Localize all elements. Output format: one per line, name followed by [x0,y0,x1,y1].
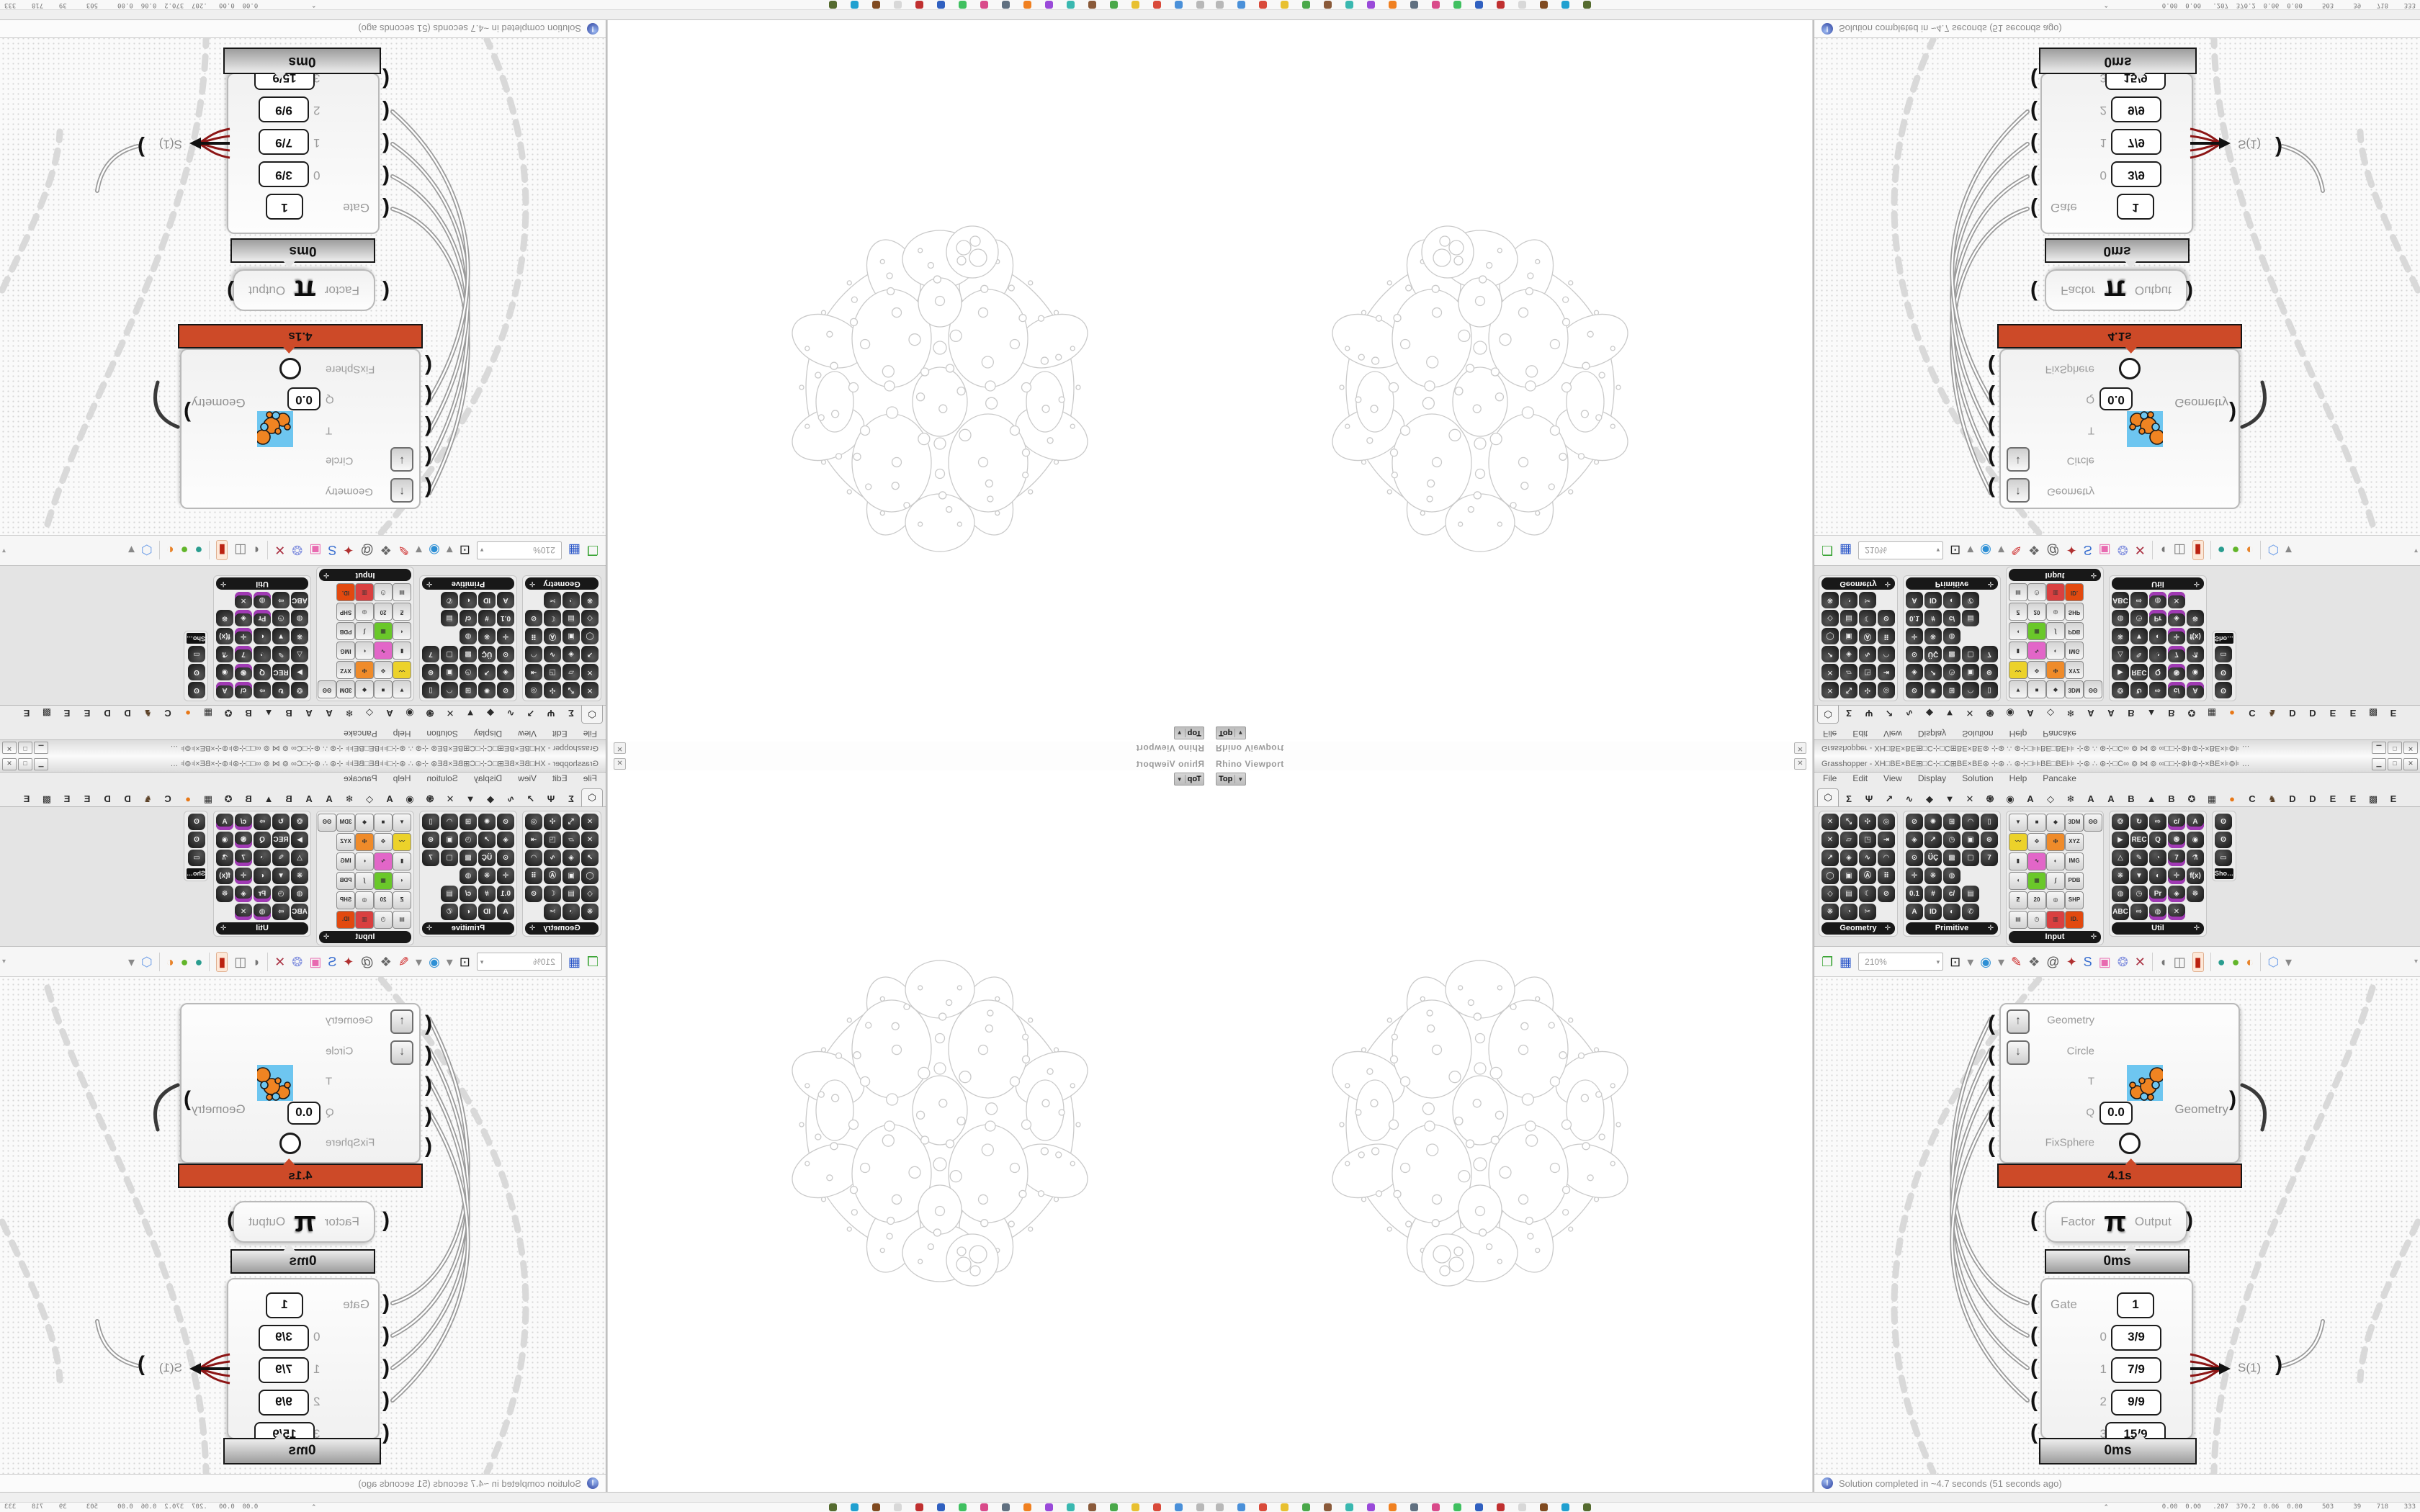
tab-plugin-a2[interactable]: A [2081,706,2101,721]
component-icon[interactable]: ֍ [2168,664,2185,680]
tab-mountain[interactable]: ▲ [259,706,279,721]
component-icon[interactable]: # [478,610,496,626]
component-icon[interactable]: Pr [2149,886,2166,902]
taskbar-app-icon[interactable] [1561,1,1569,9]
gate-input-grip[interactable]: ( [382,202,390,216]
component-icon[interactable]: ÜÇ [478,850,496,866]
component-icon[interactable]: ▦ [2027,872,2046,890]
component-icon[interactable]: ⊘ [525,886,542,902]
taskbar-app-icon[interactable] [851,1503,859,1511]
component-icon[interactable]: ID. [336,583,355,601]
taskbar[interactable]: ⌃ 0.00 0.00 .207 370.2 0.06 0.00 503 39 … [1210,0,2420,10]
component-icon[interactable]: ▯ [422,682,439,698]
taskbar-app-icon[interactable] [980,1503,988,1511]
tab-maths[interactable]: Σ [561,706,581,721]
preview-off-icon[interactable]: ◖ [2159,541,2167,560]
taskbar-app-icon[interactable] [1475,1,1483,9]
zoom-extents-icon[interactable]: ⊡ [460,953,470,971]
taskbar-app-icon[interactable] [1002,1,1010,9]
tab-vector[interactable]: ↗ [1879,706,1899,721]
tab-surface[interactable]: ◆ [1919,791,1940,806]
cluster-input-grip-q[interactable]: ( [1988,1109,1995,1123]
fixsphere-toggle[interactable] [279,358,301,379]
component-icon[interactable]: ↗ [1821,850,1839,866]
tab-surface[interactable]: ◆ [480,791,501,806]
taskbar-app-icon[interactable] [1237,1,1245,9]
gift-box-icon[interactable]: ▣ [309,953,321,971]
component-icon[interactable]: ◈ [235,610,252,626]
taskbar-app-icon[interactable] [1367,1503,1375,1511]
component-icon[interactable]: ✕ [581,814,599,830]
component-icon[interactable]: ⊛ [422,664,439,680]
taskbar-app-icon[interactable] [1131,1503,1139,1511]
close-button-icon[interactable]: ✕ [2403,742,2418,754]
component-icon[interactable]: ⊘ [497,682,514,698]
camera-lamp-icon[interactable]: ❖ [380,953,392,971]
component-icon[interactable]: ◉ [216,832,233,848]
menu-file[interactable]: File [1823,726,1837,739]
component-icon[interactable]: ⊙ [497,850,514,866]
component-icon[interactable]: SHP [2065,603,2084,621]
component-icon[interactable]: ◠ [525,646,542,662]
component-icon[interactable]: ■ [374,680,393,698]
caret-2-icon[interactable]: ▾ [416,541,422,560]
cluster-input-grip-t[interactable]: ( [425,420,432,434]
cluster-input-grip-fixsphere[interactable]: ( [1988,359,1995,373]
taskbar-app-icon[interactable] [1324,1,1332,9]
component-icon[interactable]: ✂ [1859,904,1876,920]
menu-edit[interactable]: Edit [1852,726,1868,739]
tab-maths[interactable]: Σ [1839,706,1859,721]
blob-teal-icon[interactable]: ● [194,953,202,971]
palette-group-label[interactable]: Input✛ [319,569,411,581]
gate-value-chip[interactable]: 9/9 [2111,1390,2161,1416]
tab-grid[interactable]: ▦ [198,791,218,806]
taskbar-app-icon[interactable] [1497,1503,1505,1511]
blob-green-icon[interactable]: ● [2232,541,2240,560]
tab-mountain[interactable]: ▲ [2141,706,2161,721]
menu-display[interactable]: Display [474,726,502,739]
component-icon[interactable]: ↻ [272,682,290,698]
component-icon[interactable]: ▣ [1962,832,1979,848]
component-icon[interactable]: ▭ [2215,850,2232,866]
tab-plugin-b2[interactable]: B [2161,791,2182,806]
component-icon[interactable]: ❋ [478,628,496,644]
component-icon[interactable]: ▥ [2046,911,2065,929]
gate-input-grip[interactable]: ( [2030,1361,2038,1375]
stream-filter-component[interactable]: Gate1(03/9(17/9(29/9(315/9( [227,1278,380,1439]
component-icon[interactable]: f(x) [2187,628,2204,644]
blob-green-icon[interactable]: ● [181,541,189,560]
open-file-icon[interactable]: ❐ [587,953,599,971]
tab-plugin-e1[interactable]: E [2323,706,2343,721]
component-icon[interactable]: ⤡ [563,814,580,830]
gate-input-grip[interactable]: ( [2030,1328,2038,1343]
stream-output-grip[interactable]: ) [2275,140,2282,155]
component-icon[interactable]: ◖ [2009,872,2027,890]
tab-orange-dot[interactable]: ● [178,706,198,721]
expand-group-icon[interactable]: ✛ [426,922,432,935]
menu-edit[interactable]: Edit [1852,773,1868,786]
component-icon[interactable]: ID [1924,592,1942,608]
preview-wire-icon[interactable]: ◫ [234,541,246,560]
menu-edit[interactable]: Edit [552,726,568,739]
component-icon[interactable]: 20 [2027,603,2046,621]
component-icon[interactable]: ▭ [188,850,205,866]
gate-input-grip[interactable]: ( [2030,169,2038,184]
tab-mountain[interactable]: ▲ [2141,791,2161,806]
component-icon[interactable]: ▭ [188,646,205,662]
gate-input-grip[interactable]: ( [382,72,390,86]
component-icon[interactable]: IMG [336,642,355,660]
component-icon[interactable]: ❋ [478,868,496,884]
taskbar-app-icon[interactable] [894,1503,902,1511]
component-icon[interactable]: ↗ [1821,646,1839,662]
rhino-viewport-panel[interactable]: Rhino Viewport ✕ Top ▼ [1210,20,1814,756]
component-icon[interactable]: ◔ [2149,850,2166,866]
component-icon[interactable]: ❂ [291,814,308,830]
stream-filter-component[interactable]: Gate1(03/9(17/9(29/9(315/9( [2040,73,2193,234]
component-icon[interactable]: ◎ [2046,891,2065,909]
grasshopper-titlebar[interactable]: Grasshopper - ΧΗ□ΒΕ×ΒΕ⊞□Ϲ⊹□Ϲ⊞ΒΕ×ΒΕ⊛ ⊹⊛ ∴… [1814,756,2420,773]
tab-plugin-e2[interactable]: E [2343,706,2363,721]
component-icon[interactable]: ⇨ [254,814,271,830]
search-s-icon[interactable]: S [328,541,336,560]
taskbar-app-icon[interactable] [1389,1,1397,9]
taskbar-app-icon[interactable] [1518,1503,1526,1511]
q-value-chip[interactable]: 0.0 [287,1102,321,1125]
component-icon[interactable]: ▼ [2009,814,2027,832]
cluster-component[interactable]: ↑ ↓ 0.0 [1999,1003,2240,1164]
tab-vector[interactable]: ↗ [521,791,541,806]
gate-value-chip[interactable]: 7/9 [2111,1357,2161,1383]
component-icon[interactable]: ◎ [2046,603,2065,621]
circle-packing-drawing[interactable] [1210,20,1814,756]
component-icon[interactable]: Ƶ [2009,891,2027,909]
promote-down-button[interactable]: ↓ [2007,447,2030,472]
component-icon[interactable]: ✛ [2168,628,2185,644]
component-icon[interactable]: ◖ [2009,622,2027,640]
component-icon[interactable]: A [2187,682,2204,698]
component-icon[interactable]: ◎ [355,603,374,621]
cluster-input-grip-t[interactable]: ( [1988,1078,1995,1092]
component-icon[interactable]: ✥ [374,661,393,679]
cluster-input-grip-geometry[interactable]: ( [1988,1017,1995,1031]
tab-display[interactable]: ◉ [400,791,420,806]
cluster-component[interactable]: ↑ ↓ 0.0 [1999,348,2240,509]
component-icon[interactable]: ✣ [544,682,561,698]
tab-plugin-b2[interactable]: B [2161,706,2182,721]
component-icon[interactable]: 3DM [336,680,355,698]
tab-plugin-a3[interactable]: A [2101,706,2121,721]
grasshopper-canvas[interactable]: ↑ ↓ 0.0 [0,977,606,1474]
caret-1-icon[interactable]: ▾ [1967,953,1973,971]
component-icon[interactable]: ∿ [374,642,393,660]
cluster-input-grip-fixsphere[interactable]: ( [1988,1139,1995,1153]
taskbar-app-icon[interactable] [1540,1,1548,9]
component-icon[interactable]: ◇ [1821,610,1839,626]
promote-up-button[interactable]: ↑ [390,1009,413,1034]
component-icon[interactable]: ◔ [1840,592,1857,608]
component-icon[interactable]: ◐ [254,868,271,884]
taskbar-app-icon[interactable] [937,1503,945,1511]
menu-solution[interactable]: Solution [426,773,457,786]
component-icon[interactable]: Pr [254,610,271,626]
component-icon[interactable]: # [478,886,496,902]
tab-params[interactable]: ⬡ [581,706,603,724]
hex-blue-icon[interactable]: ⬡ [141,541,153,560]
component-icon[interactable]: ↗ [581,850,599,866]
tab-snowflake[interactable]: ❄ [2061,706,2081,721]
component-icon[interactable]: ʘʘ [2084,680,2102,698]
component-icon[interactable]: ◉ [216,664,233,680]
tab-gem[interactable]: ◇ [2040,791,2061,806]
taskbar-app-icon[interactable] [1131,1,1139,9]
tab-grid[interactable]: ▦ [2202,706,2222,721]
component-icon[interactable]: ☸ [216,610,233,626]
component-icon[interactable]: ⇥ [1878,832,1895,848]
caret-2-icon[interactable]: ▾ [416,953,422,971]
component-icon[interactable]: ☸ [216,886,233,902]
component-icon[interactable]: Ƶ [393,891,411,909]
component-icon[interactable]: ⊞ [460,814,477,830]
component-icon[interactable]: ↗ [478,664,496,680]
tab-vector[interactable]: ↗ [1879,791,1899,806]
promote-up-button[interactable]: ↑ [2007,478,2030,503]
component-icon[interactable]: ▥ [355,911,374,929]
component-icon[interactable]: ◠ [441,814,458,830]
tab-transform[interactable]: ֍ [1980,706,2000,721]
palette-group-label[interactable]: Geometry✛ [525,577,599,590]
component-icon[interactable]: ■ [374,814,393,832]
gate-value-chip[interactable]: 1 [2117,194,2154,220]
component-icon[interactable]: ☾ [1859,610,1876,626]
component-icon[interactable]: ▤ [2009,911,2027,929]
taskbar[interactable]: ⌃ 0.00 0.00 .207 370.2 0.06 0.00 503 39 … [0,1502,1210,1512]
remote-panel-icon[interactable]: @ [360,953,373,971]
preview-eye-icon[interactable]: ◉ [1980,541,1991,560]
component-icon[interactable]: ⊞ [1943,682,1960,698]
stream-filter-component[interactable]: Gate1(03/9(17/9(29/9(315/9( [227,73,380,234]
tab-display[interactable]: ◉ [2000,791,2020,806]
tab-transform[interactable]: ֍ [420,791,440,806]
maximize-button-icon[interactable]: □ [2388,742,2402,754]
component-icon[interactable]: ◷ [2130,886,2148,902]
taskbar-app-icon[interactable] [980,1,988,9]
taskbar-app-icon[interactable] [1002,1503,1010,1511]
component-icon[interactable]: A [216,682,233,698]
gate-value-chip[interactable]: 9/9 [2111,96,2161,122]
component-icon[interactable]: ⊞ [460,682,477,698]
tab-plugin-d1[interactable]: D [2282,791,2303,806]
cluster-output-grip[interactable]: ) [2229,405,2236,420]
component-icon[interactable]: ◎ [525,682,542,698]
component-icon[interactable]: ✕ [2168,904,2185,920]
menu-view[interactable]: View [1883,726,1902,739]
zoom-extents-icon[interactable]: ⊡ [1950,953,1960,971]
component-icon[interactable]: ◷ [272,886,290,902]
component-icon[interactable]: △ [291,850,308,866]
tab-plugin-b1[interactable]: B [2121,791,2141,806]
component-icon[interactable]: ✛ [497,628,514,644]
component-icon[interactable]: ∿ [374,852,393,870]
component-icon[interactable]: ʘʘ [318,814,336,832]
tab-surface[interactable]: ◆ [480,706,501,721]
save-file-icon[interactable]: ▦ [1839,953,1852,971]
gate-input-grip[interactable]: ( [382,1426,390,1440]
promote-down-button[interactable]: ↓ [390,1040,413,1065]
component-icon[interactable]: ◍ [460,868,477,884]
tab-plugin-e3[interactable]: E [17,791,37,806]
component-icon[interactable]: ABC [291,592,308,608]
component-icon[interactable]: ▤ [441,610,458,626]
promote-down-button[interactable]: ↓ [390,447,413,472]
component-icon[interactable]: ❋ [1924,868,1942,884]
component-icon[interactable]: ◠ [1962,814,1979,830]
tab-snowflake[interactable]: ❄ [339,791,359,806]
expand-group-icon[interactable]: ✛ [426,577,432,590]
component-icon[interactable]: ✎ [272,646,290,662]
component-icon[interactable]: ◷ [2027,583,2046,601]
menu-pancake[interactable]: Pancake [344,773,377,786]
taskbar-app-icon[interactable] [1281,1,1289,9]
component-icon[interactable]: SHP [336,603,355,621]
component-icon[interactable]: 🜊 [2046,661,2065,679]
component-icon[interactable]: 7 [235,646,252,662]
tab-plugin-e1[interactable]: E [77,791,97,806]
preview-off-icon[interactable]: ◖ [2159,953,2167,971]
tab-bird[interactable]: ♞ [2262,791,2282,806]
component-icon[interactable]: ✕ [581,832,599,848]
cluster-input-grip-t[interactable]: ( [425,1078,432,1092]
palette-group-label[interactable]: Primitive✛ [1906,577,1998,590]
component-icon[interactable]: ⤡ [1840,682,1857,698]
preview-off-icon[interactable]: ◖ [253,541,261,560]
caret-3-icon[interactable]: ▾ [2285,953,2292,971]
component-icon[interactable]: ✺ [478,682,496,698]
preview-shaded-icon[interactable]: ▮ [216,952,228,972]
search-s-icon[interactable]: S [328,953,336,971]
component-icon[interactable]: ⇥ [525,664,542,680]
tab-plugin-a1[interactable]: A [2020,791,2040,806]
preview-wire-icon[interactable]: ◫ [2174,953,2186,971]
taskbar-app-icon[interactable] [1067,1503,1075,1511]
component-icon[interactable]: ◆ [2046,814,2065,832]
component-icon[interactable]: ❋ [1821,592,1839,608]
twin-bulbs-icon[interactable]: ❂ [2117,953,2128,971]
tab-intersect[interactable]: ✕ [440,706,460,721]
component-icon[interactable]: ▤ [441,886,458,902]
component-icon[interactable]: ∫ [355,622,374,640]
close-button-icon[interactable]: ✕ [2403,758,2418,770]
component-icon[interactable]: ▦ [2027,622,2046,640]
menu-help[interactable]: Help [393,773,411,786]
component-icon[interactable]: 7 [2168,646,2185,662]
component-icon[interactable]: ⊘ [1906,682,1923,698]
component-icon[interactable]: A [497,592,514,608]
component-icon[interactable]: ʘ [188,682,205,698]
tab-orange-dot[interactable]: ● [2222,791,2242,806]
component-icon[interactable]: ◐ [1943,592,1960,608]
component-icon[interactable]: ⠿ [1878,868,1895,884]
component-icon[interactable]: ◎ [1878,682,1895,698]
component-icon[interactable]: ◯ [1821,868,1839,884]
component-icon[interactable]: ❂ [2112,682,2129,698]
component-icon[interactable]: Pr [254,886,271,902]
taskbar-app-icon[interactable] [1175,1503,1183,1511]
taskbar-app-icon[interactable] [1259,1,1267,9]
component-icon[interactable]: ֍ [235,664,252,680]
preview-eye-icon[interactable]: ◉ [1980,953,1991,971]
tab-kangaroo[interactable]: Ψ [541,791,561,806]
q-value-chip[interactable]: 0.0 [2099,1102,2133,1125]
expand-group-icon[interactable]: ✛ [2091,569,2097,581]
caret-1-icon[interactable]: ▾ [447,541,453,560]
component-icon[interactable]: ▢ [441,646,458,662]
component-icon[interactable]: ◈ [497,832,514,848]
camera-lamp-icon[interactable]: ❖ [2028,541,2040,560]
component-icon[interactable]: ▼ [2130,868,2148,884]
grasshopper-titlebar[interactable]: Grasshopper - ΧΗ□ΒΕ×ΒΕ⊞□Ϲ⊹□Ϲ⊞ΒΕ×ΒΕ⊛ ⊹⊛ ∴… [0,739,606,756]
tab-kangaroo[interactable]: Ψ [1859,791,1879,806]
component-icon[interactable]: ⇥ [525,832,542,848]
component-icon[interactable]: ✕ [1821,832,1839,848]
menu-pancake[interactable]: Pancake [344,726,377,739]
component-icon[interactable]: XYZ [2065,661,2084,679]
tab-display[interactable]: ◉ [400,706,420,721]
component-icon[interactable]: ◈ [563,646,580,662]
component-icon[interactable]: ∿ [2027,852,2046,870]
component-icon[interactable]: A [216,814,233,830]
component-icon[interactable]: ▦ [374,872,393,890]
component-icon[interactable]: ❋ [1821,904,1839,920]
component-icon[interactable]: ▤ [393,911,411,929]
gate-value-chip[interactable]: 9/9 [259,1390,309,1416]
cluster-input-grip-circle[interactable]: ( [425,450,432,464]
sketch-pen-icon[interactable]: ✎ [398,541,409,560]
component-icon[interactable]: ▣ [1962,664,1979,680]
component-icon[interactable]: ID. [2065,911,2084,929]
component-icon[interactable]: ⇨ [2130,592,2148,608]
component-icon[interactable]: △ [2112,850,2129,866]
tab-grid[interactable]: ▦ [198,706,218,721]
grasshopper-titlebar[interactable]: Grasshopper - ΧΗ□ΒΕ×ΒΕ⊞□Ϲ⊹□Ϲ⊞ΒΕ×ΒΕ⊛ ⊹⊛ ∴… [0,756,606,773]
gate-value-chip[interactable]: 1 [266,194,303,220]
component-icon[interactable]: ↗ [478,832,496,848]
open-file-icon[interactable]: ❐ [587,541,599,560]
tab-curve[interactable]: ∿ [1899,706,1919,721]
cluster-input-grip-geometry[interactable]: ( [1988,481,1995,495]
circle-packing-drawing[interactable] [606,20,1210,756]
tab-plugin-a3[interactable]: A [299,706,319,721]
tab-orange-dot[interactable]: ● [178,791,198,806]
tab-plugin-c[interactable]: C [2242,706,2262,721]
stream-filter-component[interactable]: Gate1(03/9(17/9(29/9(315/9( [2040,1278,2193,1439]
palette-group-label[interactable]: Input✛ [319,931,411,943]
component-icon[interactable]: ◍ [2112,610,2129,626]
component-icon[interactable]: ◈ [235,886,252,902]
component-icon[interactable]: ◳ [544,832,561,848]
component-icon[interactable]: ◔ [254,646,271,662]
save-file-icon[interactable]: ▦ [1839,541,1852,560]
component-icon[interactable]: ◷ [460,664,477,680]
tab-pattern[interactable]: ▩ [2363,706,2383,721]
remote-panel-icon[interactable]: @ [2046,541,2059,560]
open-file-icon[interactable]: ❐ [1821,541,1833,560]
tab-curve[interactable]: ∿ [501,791,521,806]
expand-group-icon[interactable]: ✛ [1885,577,1891,590]
caret-2-icon[interactable]: ▾ [1998,541,2004,560]
